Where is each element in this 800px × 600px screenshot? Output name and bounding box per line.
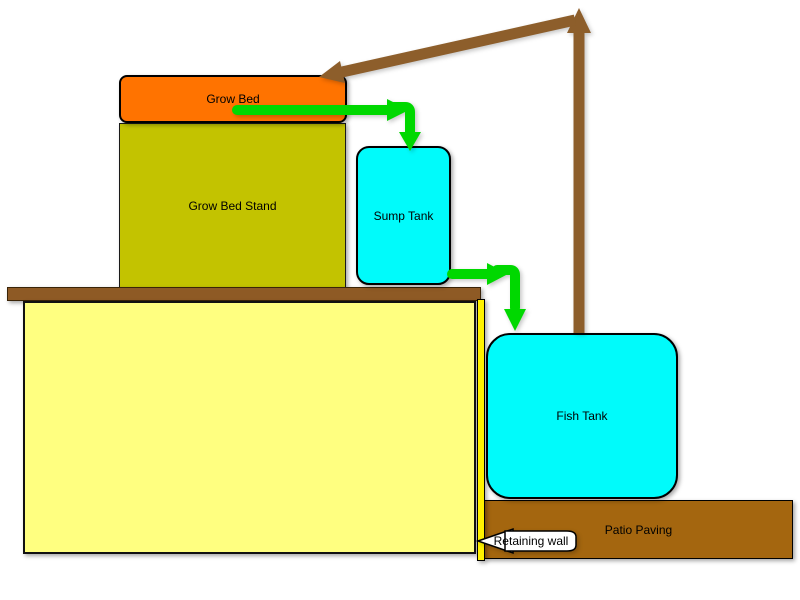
flow-sump-arrowhead-icon [487, 263, 508, 285]
retaining-wall-strip-shape [477, 299, 485, 561]
flow-sump-down-arrowhead-icon [504, 309, 526, 331]
fish-tank-label: Fish Tank [556, 409, 607, 423]
patio-paving-label: Patio Paving [605, 523, 672, 537]
pump-pipe-up-arrowhead-icon [567, 8, 591, 33]
aquaponics-diagram: Grow Bed Stand Grow Bed Patio Paving Fis… [0, 0, 800, 600]
grow-bed-stand-label: Grow Bed Stand [188, 199, 276, 213]
wall-cap-shape [7, 287, 481, 301]
grow-bed-shape: Grow Bed [119, 75, 347, 123]
sump-tank-label: Sump Tank [374, 209, 434, 223]
flow-growbed-arrowhead-icon [387, 99, 409, 121]
soil-wall-shape [23, 301, 476, 554]
grow-bed-stand-shape: Grow Bed Stand [119, 123, 346, 288]
retaining-wall-label: Retaining wall [486, 531, 576, 551]
flow-growbed-elbow [393, 107, 410, 133]
sump-tank-shape: Sump Tank [356, 146, 451, 285]
fish-tank-shape: Fish Tank [486, 333, 678, 499]
pump-pipe-diagonal-line [342, 20, 575, 72]
flow-sump-elbow [497, 270, 515, 308]
grow-bed-label: Grow Bed [206, 92, 259, 106]
